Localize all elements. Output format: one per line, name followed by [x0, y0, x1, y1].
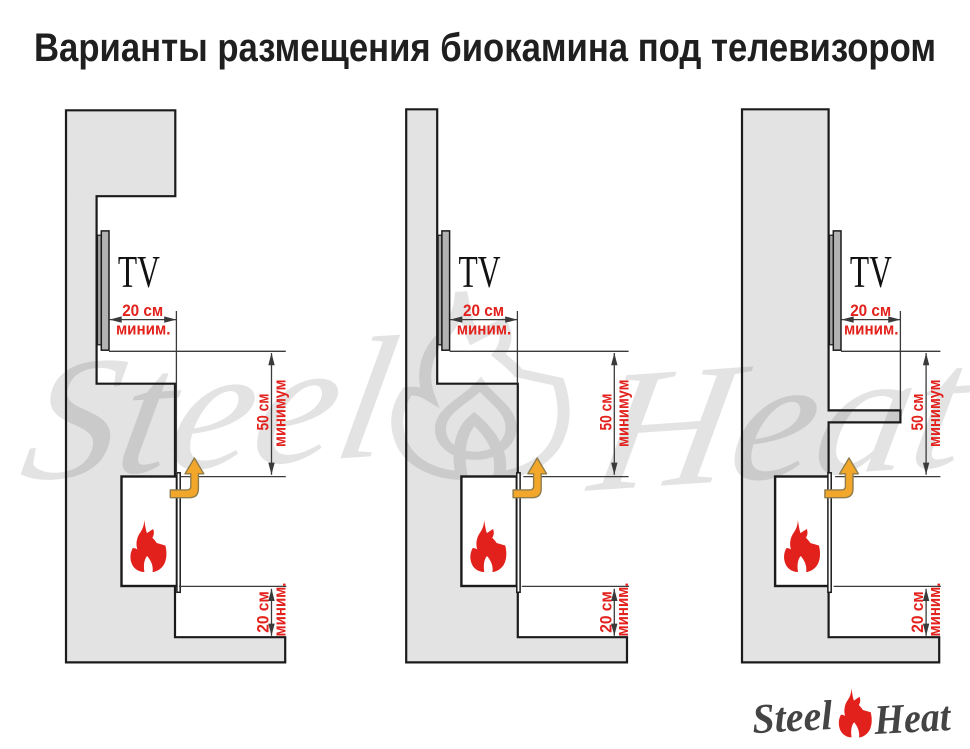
svg-text:миним.: миним.: [844, 320, 899, 338]
svg-text:TV: TV: [850, 247, 892, 297]
svg-text:50 см: 50 см: [597, 394, 615, 431]
svg-text:Steel: Steel: [10, 301, 410, 519]
svg-text:20 см: 20 см: [122, 302, 163, 320]
svg-text:минимум: минимум: [926, 379, 944, 447]
svg-text:20 см: 20 см: [909, 591, 927, 633]
svg-text:Варианты размещения биокамина: Варианты размещения биокамина под телеви…: [34, 26, 936, 70]
svg-text:Steel: Steel: [751, 693, 834, 743]
svg-text:миним.: миним.: [271, 583, 289, 637]
svg-text:Heat: Heat: [872, 694, 952, 744]
svg-text:50 см: 50 см: [255, 394, 273, 431]
svg-text:20 см: 20 см: [597, 591, 615, 633]
svg-text:TV: TV: [459, 247, 501, 297]
svg-text:20 см: 20 см: [463, 302, 504, 320]
svg-text:20 см: 20 см: [255, 591, 273, 633]
svg-text:миним.: миним.: [116, 320, 171, 338]
svg-text:TV: TV: [118, 247, 160, 297]
svg-text:50 см: 50 см: [909, 394, 927, 431]
svg-text:миним.: миним.: [457, 320, 512, 338]
svg-text:миним.: миним.: [926, 583, 944, 637]
svg-text:20 см: 20 см: [850, 302, 891, 320]
svg-text:минимум: минимум: [272, 379, 290, 447]
svg-text:миним.: миним.: [614, 583, 632, 637]
svg-text:минимум: минимум: [614, 379, 632, 447]
